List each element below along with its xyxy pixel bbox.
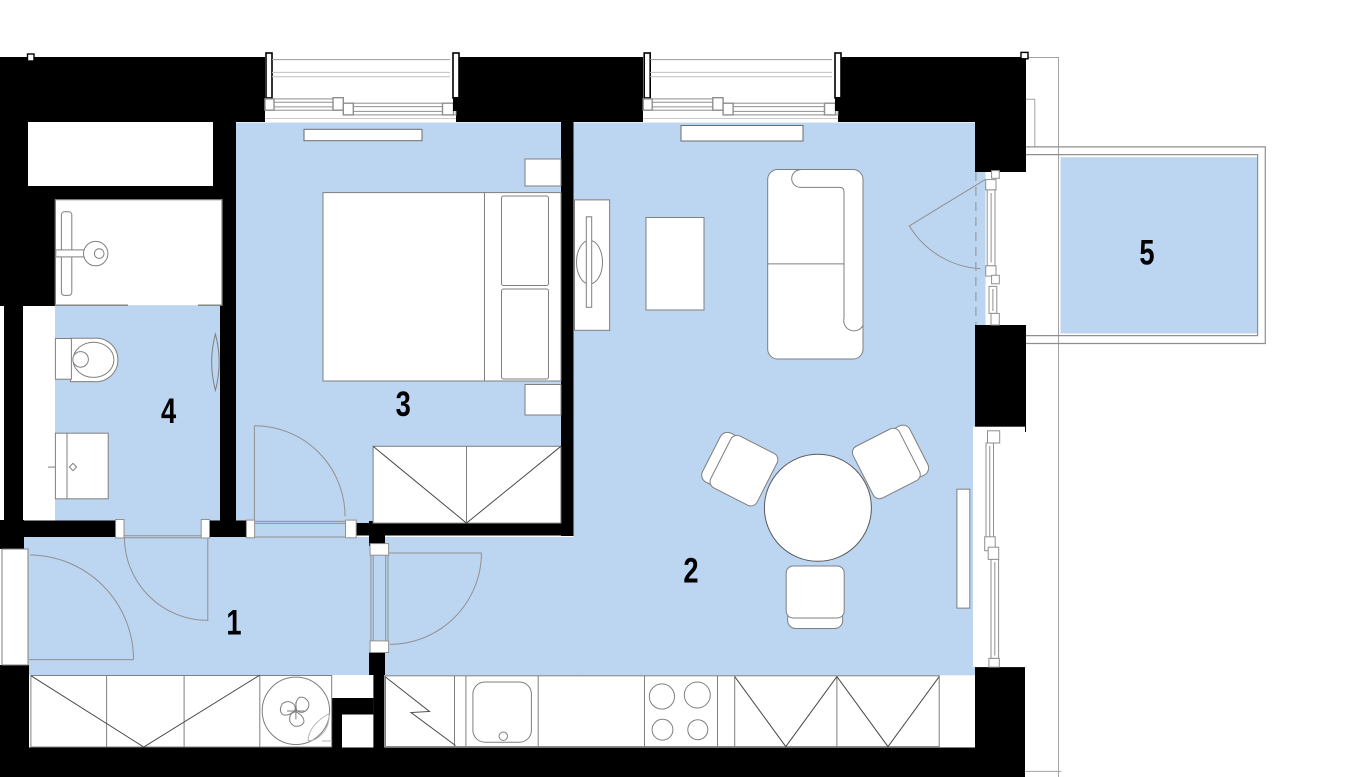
svg-text:2: 2	[683, 551, 698, 590]
svg-text:1: 1	[226, 603, 241, 642]
svg-text:5: 5	[1139, 233, 1154, 272]
svg-text:3: 3	[396, 385, 411, 424]
svg-text:4: 4	[161, 392, 177, 431]
